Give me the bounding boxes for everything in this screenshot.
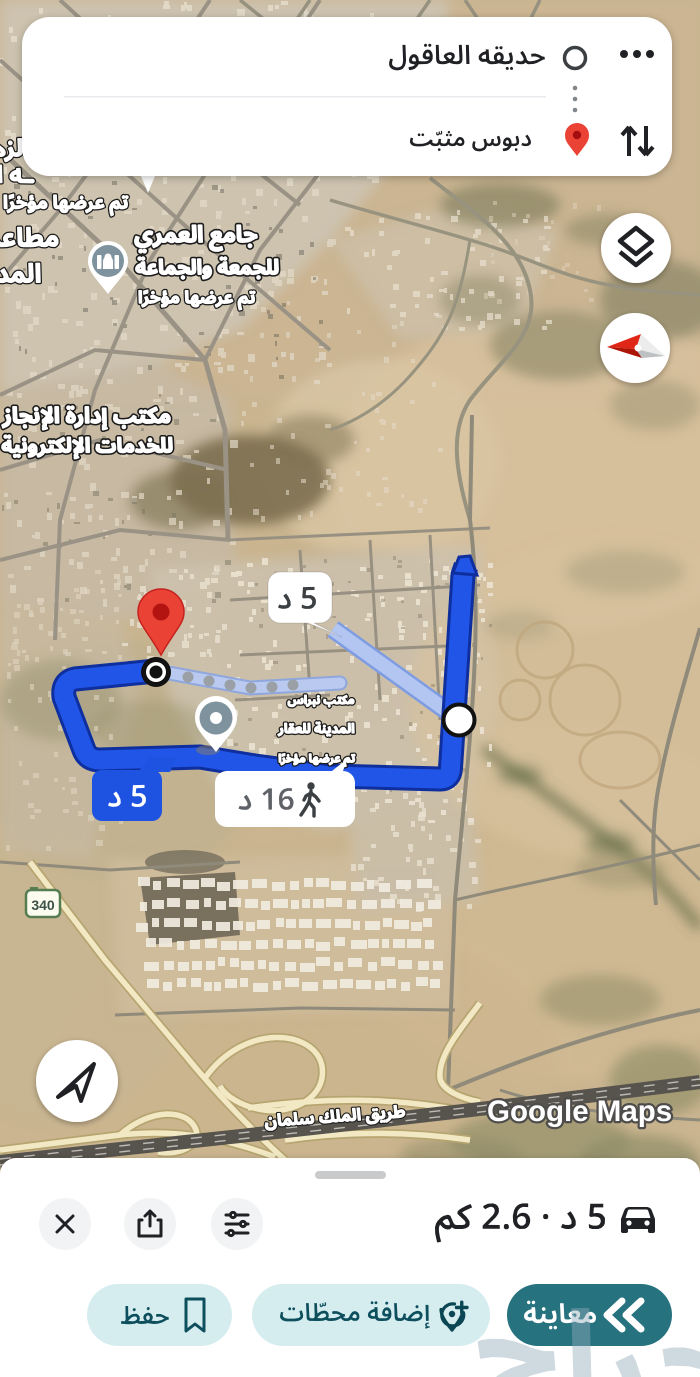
svg-text:Google Maps: Google Maps	[487, 1095, 672, 1128]
svg-text:340: 340	[31, 897, 55, 913]
